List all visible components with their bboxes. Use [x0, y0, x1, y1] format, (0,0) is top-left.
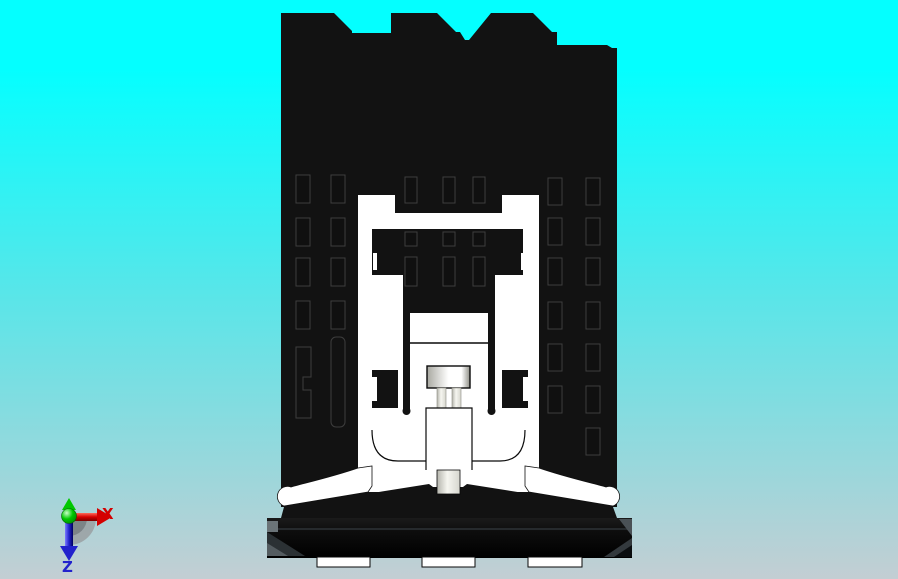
scene-canvas: X Z [0, 0, 898, 579]
cad-viewport[interactable]: X Z [0, 0, 898, 579]
orientation-triad[interactable]: X Z [60, 498, 114, 576]
base-plate [267, 518, 632, 558]
x-axis-label: X [102, 505, 114, 523]
center-stem [437, 470, 460, 494]
connector-model[interactable] [267, 13, 632, 567]
y-axis-ball [62, 498, 77, 524]
mounting-feet [317, 557, 582, 567]
z-axis-label: Z [62, 558, 73, 576]
insert-slot-grid [405, 232, 485, 286]
